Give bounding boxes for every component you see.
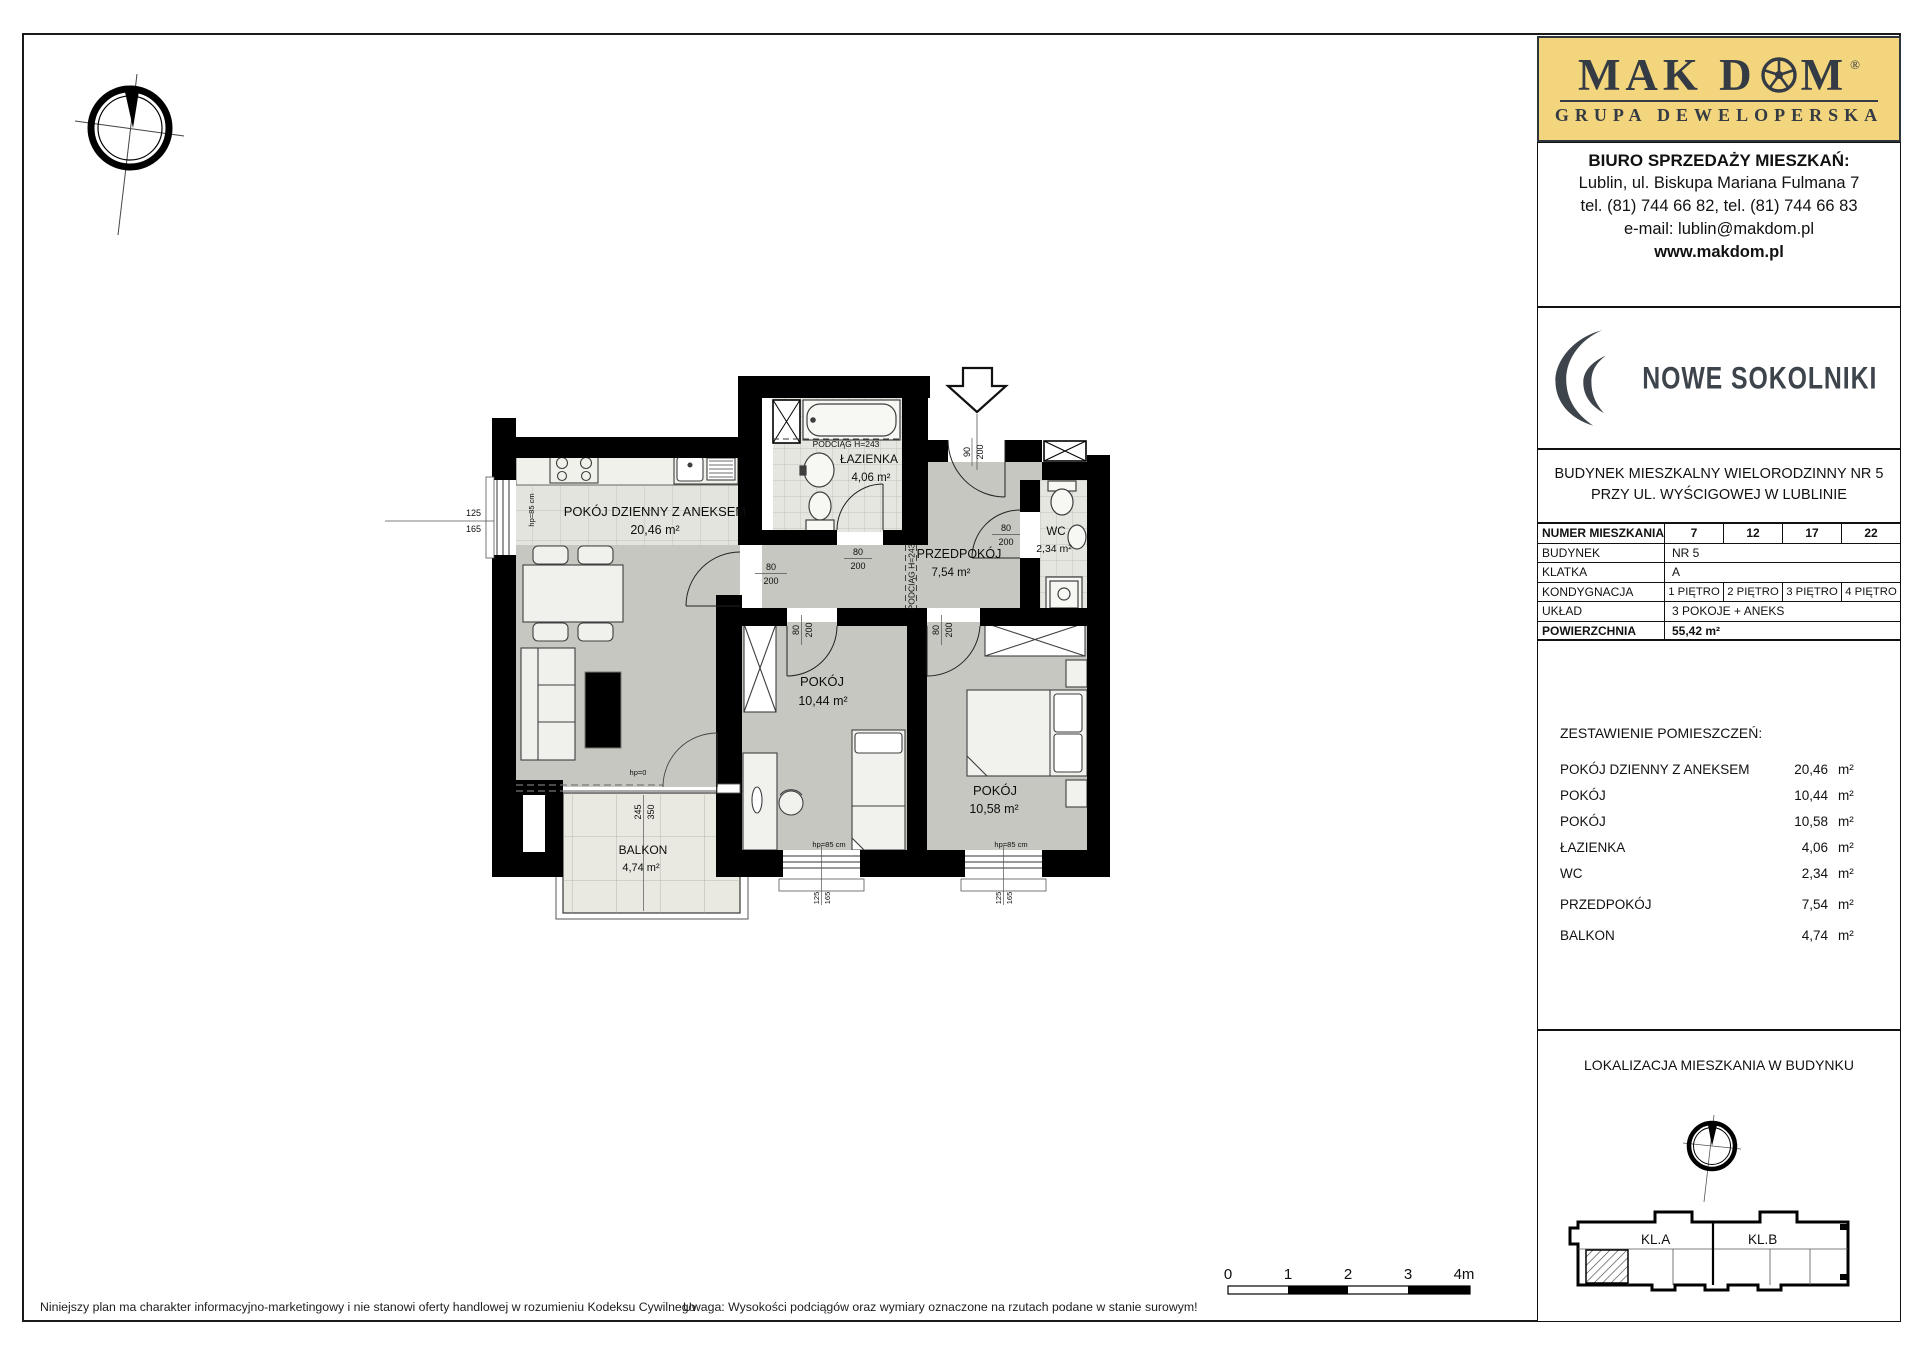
registered-mark: ®	[1850, 57, 1860, 73]
room-area-wc: 2,34 m²	[1036, 543, 1072, 555]
room-name: POKÓJ	[1560, 783, 1776, 809]
scale-tick: 2	[1344, 1266, 1352, 1283]
north-arrow-icon	[55, 55, 225, 245]
floor-cell: 4 PIĘTRO	[1842, 583, 1900, 602]
room-name: ŁAZIENKA	[1560, 835, 1776, 861]
room-area-room1: 10,44 m²	[798, 694, 847, 708]
room-label-hall: PRZEDPOKÓJ	[917, 546, 1002, 561]
apartment-info-table: NUMER MIESZKANIA 7 12 17 22 BUDYNEK NR 5…	[1537, 523, 1901, 640]
room-unit: m²	[1828, 892, 1878, 918]
room-unit: m²	[1828, 861, 1878, 887]
building-title-line2: PRZY UL. WYŚCIGOWEJ W LUBLINIE	[1538, 485, 1900, 506]
coffee-table	[585, 672, 621, 748]
dim-text: 125	[466, 508, 481, 518]
dim-text: 80	[791, 625, 801, 635]
dim-text: 200	[998, 537, 1013, 547]
building-title-line1: BUDYNEK MIESZKALNY WIELORODZINNY NR 5	[1538, 464, 1900, 485]
dim-text: hp=85 cm	[527, 493, 536, 526]
table-row: BUDYNEK NR 5	[1538, 544, 1900, 564]
room-label-living: POKÓJ DZIENNY Z ANEKSEM	[564, 504, 747, 519]
scale-tick: 3	[1404, 1266, 1412, 1283]
building-title: BUDYNEK MIESZKALNY WIELORODZINNY NR 5 PR…	[1537, 449, 1901, 523]
room-area: 4,06	[1776, 835, 1828, 861]
room-name: WC	[1560, 861, 1776, 887]
brand-text-prefix: MAK D	[1578, 53, 1757, 98]
row-label: NUMER MIESZKANIA	[1538, 524, 1665, 543]
list-item: PRZEDPOKÓJ7,54m²	[1560, 892, 1878, 918]
building-location-diagram: KL.A KL.B	[1545, 1085, 1885, 1310]
scale-tick: 1	[1284, 1266, 1292, 1283]
brand-subtitle: GRUPA DEWELOPERSKA	[1555, 105, 1883, 126]
north-arrow-small-icon	[1683, 1115, 1741, 1202]
dim-text: 245	[633, 804, 643, 819]
list-item: BALKON4,74m²	[1560, 923, 1878, 949]
room-label-room2: POKÓJ	[973, 783, 1017, 798]
floor-cell: 3 PIĘTRO	[1783, 583, 1842, 602]
dim-text: 165	[1005, 892, 1014, 905]
room-area: 2,34	[1776, 861, 1828, 887]
numer-cell: 12	[1724, 524, 1783, 543]
room-area-hall: 7,54 m²	[932, 567, 971, 579]
dim-text: 125	[994, 892, 1003, 905]
dim-text: 80	[766, 562, 776, 572]
dim-text: 80	[1001, 523, 1011, 533]
table-row: POWIERZCHNIA 55,42 m²	[1538, 622, 1900, 642]
room-label-bath: ŁAZIENKA	[840, 452, 898, 466]
row-label: POWIERZCHNIA	[1538, 622, 1665, 642]
dim-text: 200	[804, 622, 814, 637]
dim-text: hp=0	[630, 768, 647, 777]
row-label: KLATKA	[1538, 563, 1665, 582]
room-name: BALKON	[1560, 923, 1776, 949]
room-name: POKÓJ	[1560, 809, 1776, 835]
row-value: NR 5	[1665, 544, 1900, 563]
dim-text: 200	[763, 576, 778, 586]
staircase-b-label: KL.B	[1748, 1232, 1777, 1247]
sofa	[521, 648, 575, 760]
room-unit: m²	[1828, 923, 1878, 949]
room-unit: m²	[1828, 757, 1878, 783]
office-address: Lublin, ul. Biskupa Mariana Fulmana 7	[1538, 172, 1900, 195]
dim-text: 200	[975, 444, 985, 459]
scale-tick: 4m	[1454, 1266, 1475, 1283]
row-value: 3 POKOJE + ANEKS	[1665, 602, 1900, 621]
office-heading: BIURO SPRZEDAŻY MIESZKAŃ:	[1538, 151, 1900, 171]
row-label: KONDYGNACJA	[1538, 583, 1665, 602]
apartment-location-highlight	[1586, 1250, 1628, 1283]
list-item: POKÓJ10,58m²	[1560, 809, 1878, 835]
dim-text: 200	[944, 622, 954, 637]
office-website[interactable]: www.makdom.pl	[1538, 241, 1900, 264]
wall-niche	[523, 795, 545, 852]
staircase-a-label: KL.A	[1641, 1232, 1670, 1247]
numer-cell: 7	[1665, 524, 1724, 543]
numer-cell: 17	[1783, 524, 1842, 543]
dim-text: 80	[853, 547, 863, 557]
room-area-balcony: 4,74 m²	[622, 862, 660, 874]
beam-label-hall: PODCIĄG H=243	[907, 543, 917, 610]
wheel-o-icon	[1758, 54, 1800, 96]
room-area: 4,74	[1776, 923, 1828, 949]
project-logo: NOWE SOKOLNIKI	[1537, 307, 1901, 449]
row-value: A	[1665, 563, 1900, 582]
room-area: 20,46	[1776, 757, 1828, 783]
rooms-list: ZESTAWIENIE POMIESZCZEŃ: POKÓJ DZIENNY Z…	[1537, 640, 1901, 1030]
rooms-heading: ZESTAWIENIE POMIESZCZEŃ:	[1560, 725, 1878, 741]
floor-cell: 1 PIĘTRO	[1665, 583, 1724, 602]
table-row: NUMER MIESZKANIA 7 12 17 22	[1538, 524, 1900, 544]
room-name: POKÓJ DZIENNY Z ANEKSEM	[1560, 757, 1776, 783]
room-area-bath: 4,06 m²	[852, 472, 891, 484]
row-value: 55,42 m²	[1665, 622, 1900, 642]
dim-text: 80	[931, 625, 941, 635]
row-label: BUDYNEK	[1538, 544, 1665, 563]
brand-text-suffix: M	[1801, 53, 1848, 98]
room-area: 10,58	[1776, 809, 1828, 835]
room-unit: m²	[1828, 809, 1878, 835]
dim-text: hp=85 cm	[812, 840, 845, 849]
scale-tick: 0	[1224, 1266, 1232, 1283]
dim-text: 90	[962, 447, 972, 457]
crescent-icon	[1550, 326, 1622, 430]
room-unit: m²	[1828, 835, 1878, 861]
list-item: ŁAZIENKA4,06m²	[1560, 835, 1878, 861]
sales-office-info: BIURO SPRZEDAŻY MIESZKAŃ: Lublin, ul. Bi…	[1537, 142, 1901, 307]
localization-heading: LOKALIZACJA MIESZKANIA W BUDYNKU	[1538, 1031, 1900, 1073]
list-item: WC2,34m²	[1560, 861, 1878, 887]
disclaimer-right: Uwaga: Wysokości podciągów oraz wymiary …	[683, 1300, 1198, 1314]
office-phones: tel. (81) 744 66 82, tel. (81) 744 66 83	[1538, 195, 1900, 218]
dim-text: 350	[646, 804, 656, 819]
disclaimer-left: Niniejszy plan ma charakter informacyjno…	[40, 1300, 695, 1314]
scale-bar: 0 1 2 3 4m	[1215, 1258, 1485, 1303]
room-unit: m²	[1828, 783, 1878, 809]
room-label-balcony: BALKON	[619, 843, 668, 857]
room-label-wc: WC	[1046, 526, 1065, 538]
room-name: PRZEDPOKÓJ	[1560, 892, 1776, 918]
dim-text: 165	[466, 524, 481, 534]
floor-cell: 2 PIĘTRO	[1724, 583, 1783, 602]
room-area: 10,44	[1776, 783, 1828, 809]
room-label-room1: POKÓJ	[800, 674, 844, 689]
dim-text: 200	[850, 561, 865, 571]
list-item: POKÓJ10,44m²	[1560, 783, 1878, 809]
room-area: 7,54	[1776, 892, 1828, 918]
table-row: KONDYGNACJA 1 PIĘTRO 2 PIĘTRO 3 PIĘTRO 4…	[1538, 583, 1900, 603]
floor-plan: POKÓJ DZIENNY Z ANEKSEM 20,46 m² ŁAZIENK…	[370, 280, 1140, 940]
project-name: NOWE SOKOLNIKI	[1642, 360, 1877, 396]
table-row: UKŁAD 3 POKOJE + ANEKS	[1538, 602, 1900, 622]
dim-text: hp=85 cm	[994, 840, 1027, 849]
table-row: KLATKA A	[1538, 563, 1900, 583]
beam-label-bath: PODCIĄG H=243	[813, 439, 880, 449]
list-item: POKÓJ DZIENNY Z ANEKSEM20,46m²	[1560, 757, 1878, 783]
dim-text: 165	[823, 892, 832, 905]
room-area-room2: 10,58 m²	[969, 802, 1018, 816]
room-area-living: 20,46 m²	[630, 523, 679, 537]
dim-text: 125	[812, 892, 821, 905]
brand-rule	[1560, 100, 1878, 102]
row-label: UKŁAD	[1538, 602, 1665, 621]
numer-cell: 22	[1842, 524, 1900, 543]
office-email: e-mail: lublin@makdom.pl	[1538, 218, 1900, 241]
brand-logo: MAK D M ® GRUPA DEWELOPERSKA	[1537, 36, 1901, 142]
